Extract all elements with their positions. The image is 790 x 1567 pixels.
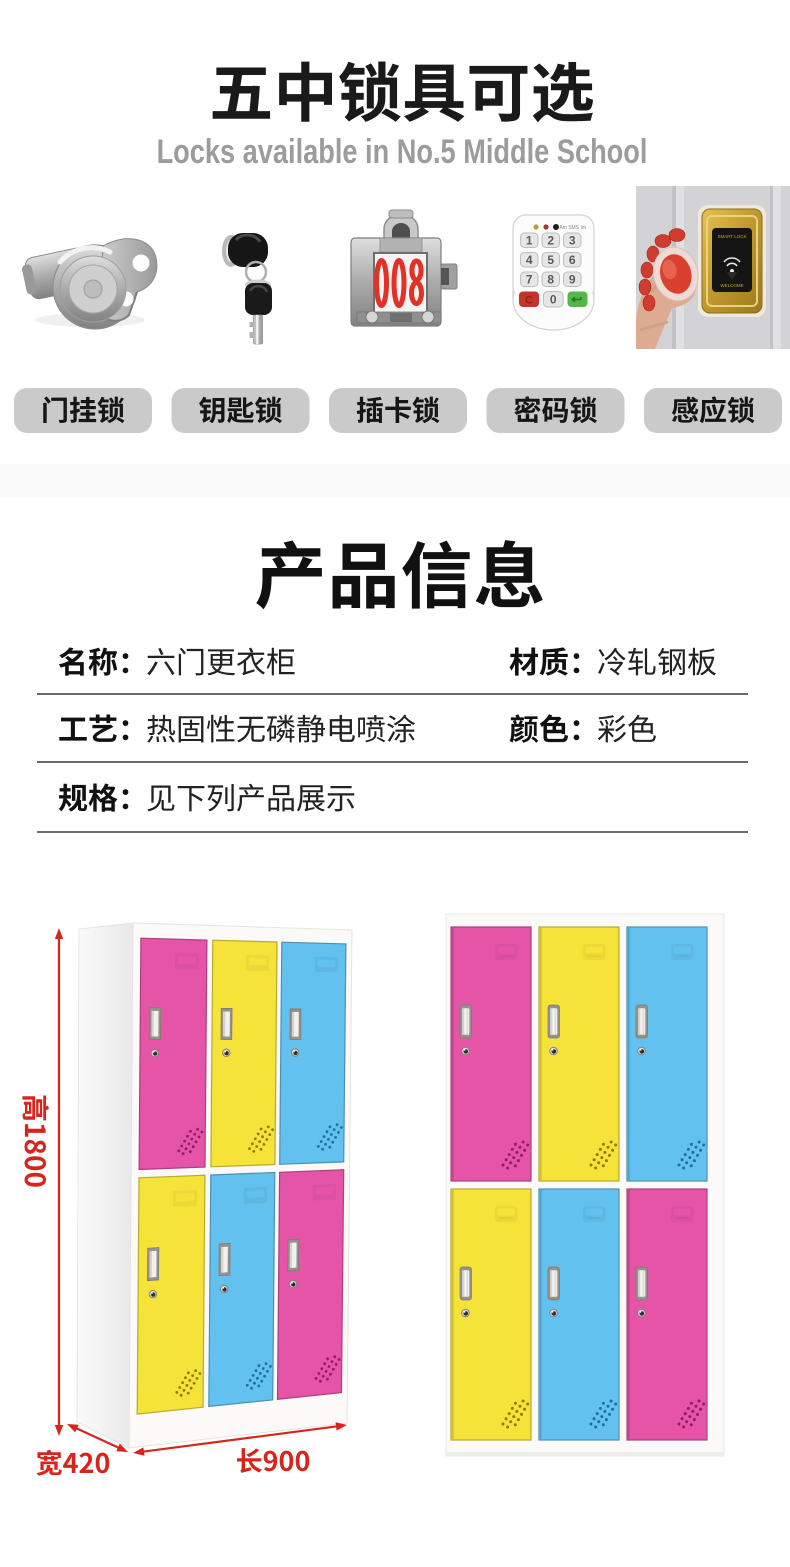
- svg-text:2: 2: [547, 233, 554, 247]
- svg-text:4: 4: [526, 253, 533, 267]
- svg-text:7: 7: [526, 272, 533, 286]
- svg-text:3: 3: [569, 233, 576, 247]
- svg-text:C: C: [525, 295, 533, 307]
- svg-text:5: 5: [547, 253, 554, 267]
- svg-text:0: 0: [550, 293, 557, 307]
- svg-text:1: 1: [526, 233, 533, 247]
- svg-text:SMART LOCK: SMART LOCK: [717, 234, 746, 239]
- svg-text:8: 8: [547, 272, 554, 286]
- svg-text:Locks available in No.5 Middle: Locks available in No.5 Middle School: [157, 132, 648, 171]
- svg-text:6: 6: [569, 253, 576, 267]
- svg-text:Am SMS Im: Am SMS Im: [559, 225, 586, 231]
- svg-text:9: 9: [569, 272, 576, 286]
- svg-text:WELCOME: WELCOME: [720, 283, 743, 288]
